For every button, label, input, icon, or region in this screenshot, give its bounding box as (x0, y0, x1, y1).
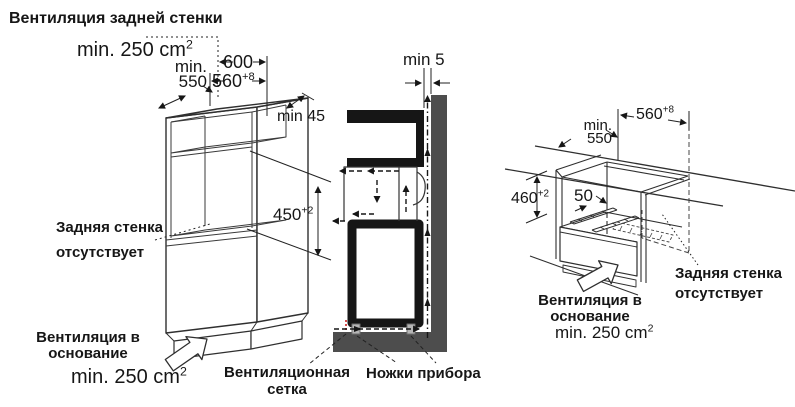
left-back-wall-line2: отсутствует (56, 240, 163, 265)
right-height-value: 460 (511, 190, 538, 207)
middle-feet-label: Ножки прибора (366, 365, 481, 382)
left-niche-height-value: 450 (273, 205, 301, 224)
left-width-niche-dim: 560+8 (212, 71, 255, 92)
right-height-sup: +2 (538, 189, 549, 200)
left-vent-area-bottom-value: min. 250 cm (71, 366, 180, 388)
left-niche-height-sup: +2 (301, 204, 313, 216)
right-width-value: 560 (636, 106, 663, 123)
right-base-vent-line1: Вентиляция в (536, 293, 644, 309)
right-width-dim: 560+8 (636, 106, 674, 124)
back-wall-leader (662, 214, 698, 265)
left-vent-area-value: min. 250 cm (77, 39, 186, 61)
left-vent-area-bottom: min. 250 cm2 (71, 366, 187, 389)
right-depth-dim: min. 550 (576, 119, 612, 145)
right-spacer-dim: 50 (574, 186, 593, 206)
wall (431, 95, 447, 352)
right-height-dim: 460+2 (511, 190, 549, 208)
middle-vent-grid-line2: сетка (218, 381, 356, 398)
left-width-niche-sup: +8 (242, 71, 255, 83)
left-top-gap-dim: min 45 (277, 108, 325, 126)
left-base-vent-line1: Вентиляция в (17, 330, 159, 346)
upper-cabinet-section (347, 110, 424, 167)
middle-vent-grid-line1: Вентиляционная (218, 364, 356, 381)
left-back-wall-label: Задняя стенка отсутствует (56, 215, 163, 265)
floor (333, 332, 447, 352)
right-width-sup: +8 (663, 105, 674, 116)
right-base-vent-label: Вентиляция в основание (536, 293, 644, 325)
middle-section-diagram (309, 68, 450, 364)
left-back-wall-line1: Задняя стенка (56, 215, 163, 240)
installation-diagram-page: Вентиляция задней стенки min. 250 cm2 mi… (0, 0, 795, 407)
missing-back-wall (613, 118, 689, 253)
left-width-niche-value: 560 (212, 71, 242, 91)
middle-wall-gap-dim: min 5 (403, 50, 445, 70)
left-niche-height-dim: 450+2 (273, 205, 313, 225)
right-back-wall-line1: Задняя стенка (675, 264, 782, 284)
right-vent-area-value: min. 250 cm (555, 323, 648, 342)
middle-vent-grid-label: Вентиляционная сетка (218, 364, 356, 398)
left-base-vent-label: Вентиляция в основание (17, 330, 159, 362)
appliance-section (344, 167, 425, 221)
right-vent-area-sup: 2 (648, 322, 654, 334)
left-depth-line2: 550 (163, 74, 207, 89)
left-vent-area-sup: 2 (186, 37, 193, 51)
right-vent-area: min. 250 cm2 (555, 323, 653, 343)
right-depth-line2: 550 (576, 132, 612, 145)
right-back-wall-label: Задняя стенка отсутствует (675, 264, 782, 304)
right-back-wall-line2: отсутствует (675, 284, 782, 304)
left-width-outer-dim: 600 (223, 52, 253, 73)
left-base-vent-line2: основание (17, 346, 159, 362)
left-vent-area-bottom-sup: 2 (180, 364, 187, 378)
left-title: Вентиляция задней стенки (9, 10, 223, 28)
lower-cabinet-section (352, 224, 419, 323)
left-depth-dim: min. 550 (163, 59, 207, 89)
